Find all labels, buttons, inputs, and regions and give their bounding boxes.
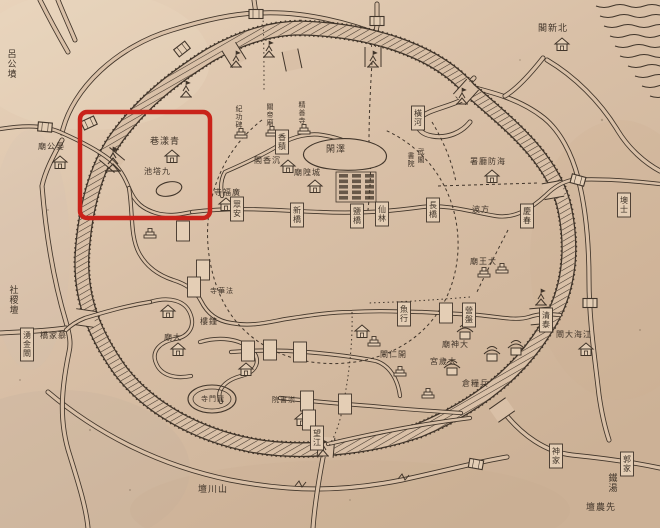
unlabeled-box (301, 391, 314, 411)
dense-block-cell (339, 185, 348, 189)
dense-block-cell (339, 196, 348, 200)
bridge-icon (583, 299, 597, 308)
dense-block-cell (352, 174, 361, 178)
dense-block-cell (365, 196, 374, 200)
scanned-map-page: 閣新北廟公晏橋家慕壇川山壇農先閘大海江巷漾青池㙮九寺福廣廟隍城閣香沉閑澤署廳防海… (0, 0, 660, 528)
place-label: 壇川山 (198, 483, 228, 495)
dense-block-cell (339, 180, 348, 184)
bridge-icon (370, 17, 384, 26)
dense-block-cell (339, 191, 348, 195)
place-label: 廟神大 (442, 339, 469, 349)
place-label: 廟大 (164, 332, 182, 342)
dense-block-cell (365, 185, 374, 189)
place-label-vertical: 書院 (408, 151, 415, 168)
place-label: 廟隍城 (294, 167, 321, 177)
place-label-vertical: 武閣 (418, 147, 425, 164)
place-label-vertical: 精善寺 (299, 100, 306, 125)
bridge-label: 新橋 (293, 205, 301, 224)
place-label: 署廳防海 (470, 156, 506, 166)
bridge-label: 眾安 (233, 200, 241, 218)
place-label: 廟王大 (470, 256, 497, 266)
dense-text-block (336, 172, 376, 202)
place-label: 院書崇 (272, 395, 296, 404)
place-label-vertical: 呂公墳 (7, 49, 16, 80)
bridge-label: 郭家 (623, 454, 631, 473)
unlabeled-box (188, 277, 201, 297)
place-label: 閘仁開 (380, 349, 407, 359)
historical-city-map: 閣新北廟公晏橋家慕壇川山壇農先閘大海江巷漾青池㙮九寺福廣廟隍城閣香沉閑澤署廳防海… (0, 0, 660, 528)
bridge-label: 慶春 (523, 206, 531, 225)
unlabeled-box (242, 341, 255, 361)
bridge-label: 神家 (552, 446, 560, 465)
unlabeled-box (440, 303, 453, 323)
bridge-label: 橫河 (414, 108, 422, 127)
place-label: 寺門龍 (201, 394, 225, 403)
bridge-label: 仙林 (378, 204, 386, 223)
bridge-icon (249, 10, 263, 19)
place-label: 倉糧兵 (462, 378, 489, 388)
unlabeled-box (264, 340, 277, 360)
dense-block-cell (339, 174, 348, 178)
bridge-label: 望江 (313, 428, 321, 447)
gate-gap (282, 49, 302, 72)
place-label: 巷漾青 (150, 135, 180, 147)
place-label: 閣香沉 (254, 155, 281, 165)
place-label-vertical: 鐵湯 (608, 472, 617, 494)
bridge-label: 墺士 (620, 195, 628, 214)
place-label: 樓鐘 (200, 316, 218, 326)
dense-block-cell (365, 180, 374, 184)
dense-block-cell (352, 185, 361, 189)
place-label: 波方 (472, 204, 490, 214)
dense-block-cell (352, 196, 361, 200)
bridge-label: 長橋 (429, 201, 437, 219)
place-label: 寺華法 (210, 286, 234, 295)
bridge-label: 湧金閘 (23, 330, 31, 358)
place-label-vertical: 關帝廟 (267, 103, 274, 127)
gate-gap (365, 47, 381, 67)
bridge-label: 香積 (278, 132, 286, 151)
unlabeled-box (294, 342, 307, 362)
place-label: 閣新北 (538, 22, 568, 34)
place-label: 壇農先 (586, 501, 616, 513)
bridge-icon (468, 458, 483, 469)
bridge-label: 清泰 (542, 310, 550, 329)
place-label: 廟公晏 (38, 141, 65, 151)
place-label: 池㙮九 (144, 166, 171, 176)
place-label: 寺福廣 (214, 187, 241, 197)
dense-block-cell (352, 180, 361, 184)
dense-block-cell (365, 174, 374, 178)
bridge-label: 鹽橋 (353, 206, 361, 225)
place-label-vertical: 社稷壇 (9, 284, 18, 316)
place-label: 閑澤 (326, 144, 346, 155)
unlabeled-box (339, 394, 352, 414)
place-label: 橋家慕 (40, 330, 67, 340)
bridge-label: 魚行 (400, 304, 408, 323)
place-label: 宮歲太 (430, 356, 457, 366)
bridge-icon (38, 122, 53, 132)
dense-block-cell (352, 191, 361, 195)
bridge-label: 營盤 (465, 305, 473, 324)
dense-block-cell (365, 191, 374, 195)
place-label: 閘大海江 (556, 329, 592, 339)
place-label-vertical: 紀功碑 (236, 104, 243, 129)
unlabeled-box (177, 221, 190, 241)
